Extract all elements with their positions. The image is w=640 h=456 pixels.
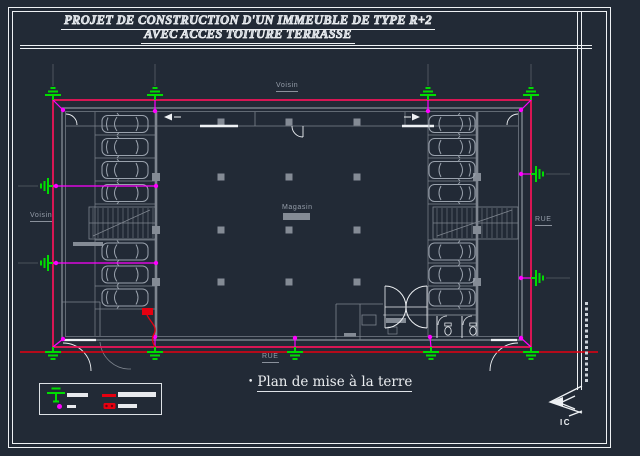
label-shop: Magasin (282, 204, 313, 213)
logo-text: IC (560, 418, 571, 427)
car-symbol (102, 113, 148, 135)
car-symbol (429, 182, 475, 204)
earth-ground-symbol (531, 166, 543, 182)
cad-drawing-canvas: PROJET DE CONSTRUCTION D'UN IMMEUBLE DE … (0, 0, 640, 456)
earth-ground-symbol (41, 178, 53, 194)
legend-disconnect-strip-icon (103, 402, 116, 410)
earth-ground-symbol (287, 347, 303, 359)
legend-label-bar (67, 405, 76, 409)
caption-text: Plan de mise à la terre (257, 374, 412, 392)
earth-ground-symbol (45, 88, 61, 100)
label-street-bottom: RUE (262, 353, 279, 363)
car-symbol (102, 182, 148, 204)
legend-earth-electrode-icon (45, 386, 67, 404)
earth-ground-symbol (147, 347, 163, 359)
earth-ground-symbol (420, 88, 436, 100)
earth-ground-symbol (147, 88, 163, 100)
company-logo: IC (536, 382, 588, 428)
car-symbol (102, 136, 148, 158)
disconnect-strip (142, 308, 155, 347)
label-neighbor-top: Voisin (276, 82, 298, 92)
legend-label-bar (118, 392, 156, 397)
legend-box (39, 383, 162, 415)
car-symbol (429, 136, 475, 158)
earth-ground-symbol (423, 347, 439, 359)
vertical-note-illegible (585, 302, 588, 383)
car-symbol (429, 113, 475, 135)
car-symbol (429, 159, 475, 181)
legend-label-bar (118, 404, 137, 408)
car-symbol (102, 287, 148, 309)
drawing-caption: •Plan de mise à la terre (248, 374, 412, 390)
structural-columns (152, 119, 481, 287)
car-symbol (102, 264, 148, 286)
car-symbol (429, 264, 475, 286)
shop-hatch-block (283, 213, 310, 220)
earth-ground-symbol (531, 270, 543, 286)
car-symbol (102, 159, 148, 181)
earth-ground-symbol (523, 88, 539, 100)
car-symbol (429, 241, 475, 263)
legend-connection-dot-icon (57, 404, 62, 409)
car-symbol (102, 241, 148, 263)
earth-ground-symbol (45, 347, 61, 359)
doors-and-openings (63, 114, 518, 372)
caption-bullet: • (248, 377, 253, 387)
earth-ground-symbol (41, 255, 53, 271)
label-neighbor-left: Voisin (30, 212, 52, 222)
car-symbol (429, 287, 475, 309)
earth-ground-symbol (523, 347, 539, 359)
label-street-right: RUE (535, 216, 552, 226)
building-walls (62, 108, 522, 369)
legend-label-bar (67, 393, 88, 397)
legend-conductor-line-icon (102, 394, 116, 397)
